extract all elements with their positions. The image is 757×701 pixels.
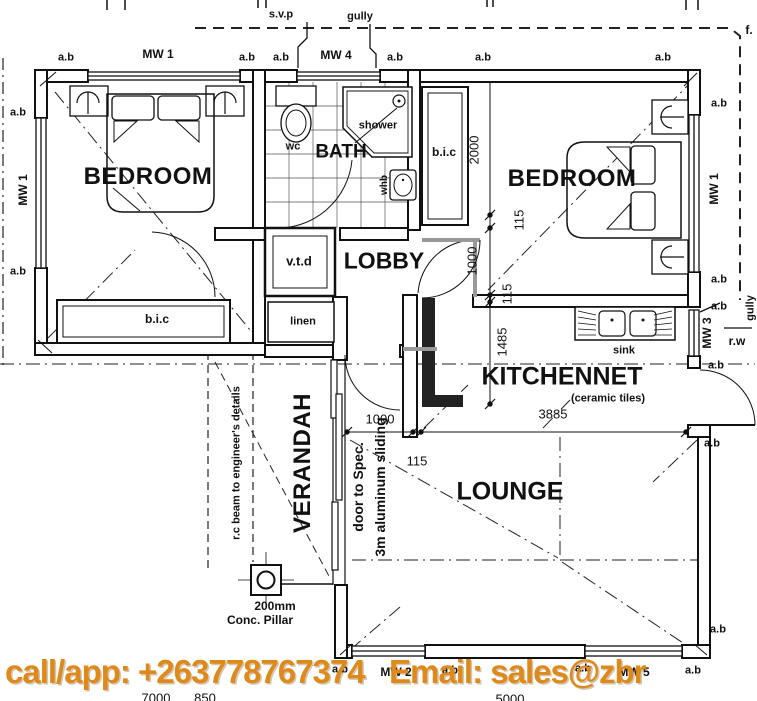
dim-2000: 2000 [468, 136, 481, 165]
ab-label: a.b [708, 361, 724, 372]
ab-label: a.b [239, 53, 255, 64]
ab-label: a.b [10, 267, 26, 278]
pillar-type-label: Conc. Pillar [227, 614, 293, 626]
ab-label: a.b [704, 439, 720, 450]
gully-label-top: gully [347, 12, 373, 23]
pillar-size-label: 200mm [254, 600, 295, 612]
room-label-bath: BATH [315, 143, 366, 162]
rw-label: r.w [729, 335, 746, 347]
dim-850: 850 [194, 692, 216, 701]
fixture-label-shower: shower [359, 121, 398, 132]
f-label: f. [745, 24, 752, 36]
room-label-verandah: VERANDAH [291, 393, 315, 533]
dim-3885: 3885 [539, 408, 568, 421]
ab-label: a.b [475, 53, 491, 64]
fixture-label-linen: linen [290, 317, 316, 328]
dim-1000-v: 1000 [466, 247, 479, 276]
sliding-door-note-line2: 3m aluminum sliding [373, 417, 387, 556]
ab-label: a.b [711, 99, 727, 110]
ab-label: a.b [711, 275, 727, 286]
floor-plan: BEDROOM BEDROOM BATH LOBBY KITCHENNET (c… [0, 0, 757, 701]
dim-7000: 7000 [142, 692, 171, 701]
fixture-label-bic-right: b.i.c [432, 146, 456, 158]
window-label-mw4: MW 4 [320, 49, 351, 61]
ab-label: a.b [655, 53, 671, 64]
dim-1000-h: 1000 [366, 413, 395, 426]
window-label-mw1-right: MW 1 [708, 173, 720, 204]
fixture-label-wc: wc [286, 142, 301, 153]
room-label-bedroom-right: BEDROOM [508, 167, 637, 191]
room-label-bedroom-left: BEDROOM [84, 165, 213, 189]
room-label-lobby: LOBBY [344, 250, 425, 273]
sink-icon [575, 307, 675, 340]
ab-label: a.b [273, 53, 289, 64]
ab-label: a.b [10, 108, 26, 119]
dim-115-b: 115 [501, 284, 514, 305]
basin-icon [390, 170, 416, 200]
dim-115-a: 115 [513, 210, 526, 231]
gully-label-right: gully [746, 295, 757, 321]
ab-label: a.b [710, 625, 726, 636]
fixture-label-sink: sink [613, 346, 635, 357]
room-label-kitchennet: KITCHENNET [481, 365, 642, 390]
room-label-lounge: LOUNGE [457, 480, 564, 505]
window-label-mw1-top: MW 1 [142, 48, 173, 60]
ab-label: a.b [387, 53, 403, 64]
ab-label: a.b [711, 302, 727, 313]
ab-label: a.b [58, 53, 74, 64]
svp-label: s.v.p [269, 10, 293, 21]
bed-icon-left [70, 86, 244, 212]
sliding-door-note-line1: door to Spec. [351, 442, 365, 531]
dim-1485: 1485 [496, 328, 509, 357]
window-label-mw3: MW 3 [701, 317, 713, 348]
ab-label: a.b [685, 666, 701, 677]
fixture-label-whb: whb [380, 175, 390, 195]
fixture-label-bic-left: b.i.c [145, 313, 169, 325]
dim-5000: 5000 [496, 693, 525, 701]
floor-plan-linework [0, 0, 757, 701]
room-note-ceramic-tiles: (ceramic tiles) [571, 394, 645, 405]
contact-banner: call/app: +263778767374 Email: sales@zbr [5, 653, 646, 691]
fixture-label-vtd: v.t.d [286, 255, 312, 268]
dim-115-c: 115 [407, 455, 428, 468]
window-label-mw1-left: MW 1 [17, 174, 29, 205]
rc-beam-note: r.c beam to engineer's details [232, 386, 243, 540]
